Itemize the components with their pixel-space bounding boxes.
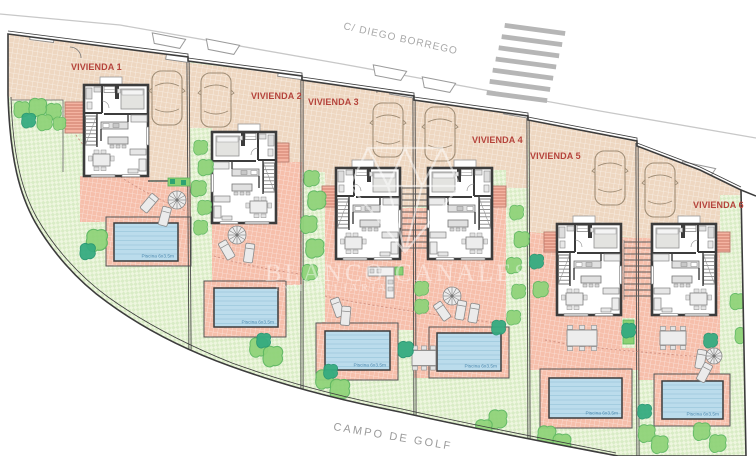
svg-text:VIVIENDA 6: VIVIENDA 6 — [693, 200, 744, 210]
svg-text:VIVIENDA 5: VIVIENDA 5 — [530, 151, 581, 161]
svg-text:INMOBILIARIA: INMOBILIARIA — [275, 282, 389, 294]
svg-text:Piscina 6x3.5m: Piscina 6x3.5m — [464, 364, 497, 370]
svg-text:Piscina 6x3.5m: Piscina 6x3.5m — [353, 363, 386, 369]
svg-text:Piscina 6x3.5m: Piscina 6x3.5m — [585, 411, 618, 417]
svg-text:Piscina 6x3.5m: Piscina 6x3.5m — [141, 254, 174, 260]
svg-text:Piscina 6x3.5m: Piscina 6x3.5m — [241, 320, 274, 326]
svg-text:VIVIENDA 3: VIVIENDA 3 — [308, 97, 359, 107]
svg-text:VIVIENDA 4: VIVIENDA 4 — [472, 135, 523, 145]
svg-text:Piscina 6x3.5m: Piscina 6x3.5m — [686, 412, 719, 418]
svg-text:VIVIENDA 1: VIVIENDA 1 — [71, 62, 122, 72]
svg-text:VIVIENDA 2: VIVIENDA 2 — [251, 91, 302, 101]
